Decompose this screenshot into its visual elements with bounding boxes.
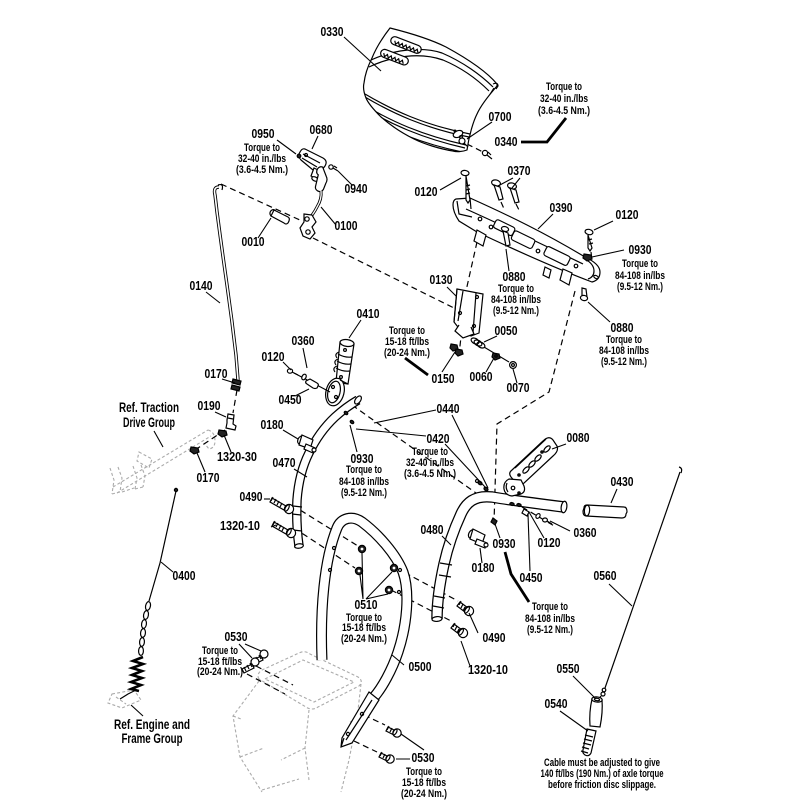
- svg-text:0330: 0330: [321, 24, 344, 39]
- svg-text:(9.5-12 Nm.): (9.5-12 Nm.): [493, 305, 539, 317]
- svg-text:0370: 0370: [508, 163, 531, 178]
- svg-text:0120: 0120: [538, 535, 561, 550]
- svg-text:0930: 0930: [629, 242, 652, 257]
- svg-text:0440: 0440: [437, 401, 460, 416]
- svg-text:Ref. Traction: Ref. Traction: [119, 400, 179, 415]
- svg-text:0490: 0490: [240, 489, 263, 504]
- svg-text:0400: 0400: [173, 568, 196, 583]
- svg-text:0100: 0100: [335, 218, 358, 233]
- svg-text:Torque to: Torque to: [546, 81, 582, 93]
- svg-text:(3.6-4.5 Nm.): (3.6-4.5 Nm.): [404, 468, 456, 480]
- svg-text:0010: 0010: [242, 234, 265, 249]
- svg-text:0070: 0070: [507, 380, 530, 395]
- svg-text:0530: 0530: [412, 750, 435, 765]
- svg-text:(20-24 Nm.): (20-24 Nm.): [401, 788, 447, 800]
- svg-text:0700: 0700: [489, 109, 512, 124]
- svg-text:0480: 0480: [421, 522, 444, 537]
- svg-text:Ref. Engine and: Ref. Engine and: [114, 717, 190, 732]
- svg-text:0190: 0190: [198, 398, 221, 413]
- svg-text:Frame Group: Frame Group: [122, 731, 183, 746]
- svg-text:(9.5-12 Nm.): (9.5-12 Nm.): [341, 487, 387, 499]
- svg-text:0360: 0360: [292, 333, 315, 348]
- svg-text:0540: 0540: [545, 696, 568, 711]
- svg-text:(3.6-4.5 Nm.): (3.6-4.5 Nm.): [538, 105, 590, 117]
- svg-text:0950: 0950: [252, 126, 275, 141]
- svg-text:0120: 0120: [616, 207, 639, 222]
- svg-text:0170: 0170: [205, 366, 228, 381]
- svg-text:0120: 0120: [415, 184, 438, 199]
- svg-text:0180: 0180: [261, 417, 284, 432]
- svg-text:0080: 0080: [567, 430, 590, 445]
- svg-text:0490: 0490: [483, 630, 506, 645]
- svg-text:before friction disc slippage.: before friction disc slippage.: [548, 779, 656, 791]
- svg-text:0880: 0880: [611, 320, 634, 335]
- svg-text:0530: 0530: [225, 629, 248, 644]
- svg-text:0170: 0170: [197, 470, 220, 485]
- svg-text:0930: 0930: [493, 536, 516, 551]
- svg-text:Torque to: Torque to: [532, 601, 568, 613]
- svg-text:0450: 0450: [520, 570, 543, 585]
- svg-text:0360: 0360: [574, 525, 597, 540]
- svg-text:0510: 0510: [355, 597, 378, 612]
- svg-text:0180: 0180: [472, 560, 495, 575]
- svg-text:0550: 0550: [557, 661, 580, 676]
- svg-text:0130: 0130: [430, 272, 453, 287]
- svg-text:Torque to: Torque to: [346, 464, 382, 476]
- svg-text:(9.5-12 Nm.): (9.5-12 Nm.): [601, 356, 647, 368]
- svg-text:1320-10: 1320-10: [468, 662, 508, 677]
- svg-text:32-40 in./lbs: 32-40 in./lbs: [540, 93, 588, 105]
- svg-text:0340: 0340: [495, 134, 518, 149]
- svg-text:(20-24 Nm.): (20-24 Nm.): [384, 347, 430, 359]
- svg-text:0940: 0940: [345, 181, 368, 196]
- svg-text:1320-10: 1320-10: [220, 518, 260, 533]
- svg-text:0050: 0050: [495, 323, 518, 338]
- svg-text:0120: 0120: [262, 349, 285, 364]
- svg-text:1320-30: 1320-30: [217, 449, 257, 464]
- svg-text:0060: 0060: [470, 369, 493, 384]
- svg-text:0880: 0880: [503, 269, 526, 284]
- svg-text:0150: 0150: [432, 371, 455, 386]
- svg-text:0560: 0560: [594, 568, 617, 583]
- svg-text:(9.5-12 Nm.): (9.5-12 Nm.): [527, 624, 573, 636]
- svg-text:0390: 0390: [550, 200, 573, 215]
- svg-text:0680: 0680: [310, 122, 333, 137]
- svg-text:0450: 0450: [279, 392, 302, 407]
- svg-text:0500: 0500: [409, 659, 432, 674]
- svg-text:0470: 0470: [273, 455, 296, 470]
- svg-text:0420: 0420: [427, 431, 450, 446]
- svg-text:(3.6-4.5 Nm.): (3.6-4.5 Nm.): [236, 164, 288, 176]
- svg-text:0410: 0410: [357, 306, 380, 321]
- svg-text:0140: 0140: [190, 278, 213, 293]
- svg-text:(9.5-12 Nm.): (9.5-12 Nm.): [617, 281, 663, 293]
- svg-text:Torque to: Torque to: [622, 258, 658, 270]
- svg-text:0430: 0430: [611, 474, 634, 489]
- svg-text:(20-24 Nm.): (20-24 Nm.): [197, 666, 243, 678]
- svg-text:(20-24 Nm.): (20-24 Nm.): [341, 633, 387, 645]
- svg-text:Drive Group: Drive Group: [123, 415, 175, 430]
